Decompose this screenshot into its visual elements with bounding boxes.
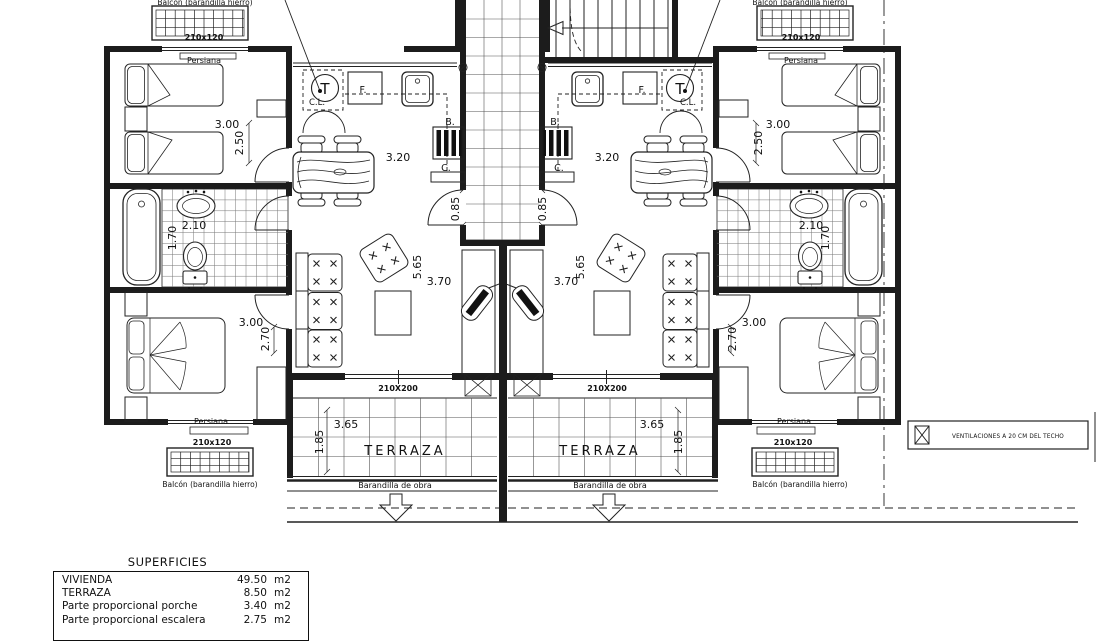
- balcony-caption-bottom-right: Balcón (barandilla hierro): [752, 480, 847, 489]
- window-label-top-right: 210x120: [782, 33, 821, 42]
- terraza-label-right: TERRAZA: [558, 444, 640, 459]
- termo-label-left: T: [319, 80, 330, 98]
- balcony-caption-top-left: Balcón (barandilla hierro): [157, 0, 252, 7]
- superficies-row-terraza: TERRAZA 8.50 m2: [62, 587, 300, 600]
- termo-label-right: T: [674, 80, 685, 98]
- dim-bedroom1-depth-right: 2.50: [752, 131, 765, 156]
- counter-label-left: C.: [441, 163, 451, 174]
- barandilla-label-left: Barandilla de obra: [358, 481, 432, 490]
- fridge-label-left: F.: [360, 85, 367, 96]
- boiler-label-left: B.: [445, 117, 455, 128]
- dim-bedroom1-depth-left: 2.50: [233, 131, 246, 156]
- dim-terraza-width-left: 3.65: [334, 418, 359, 431]
- persiana-bottom-right: Persiana: [777, 417, 811, 426]
- dim-living-length-left: 5.65: [411, 255, 424, 280]
- row-label: TERRAZA: [62, 587, 219, 600]
- apartment-right: [502, 0, 901, 521]
- dim-terraza-depth-right: 1.85: [672, 430, 685, 455]
- superficies-row-vivienda: VIVIENDA 49.50 m2: [62, 574, 300, 587]
- dim-bedroom1-width-right: 3.00: [766, 118, 791, 131]
- row-value: 2.75: [219, 614, 267, 627]
- dim-kitchen-right: 3.20: [595, 151, 620, 164]
- entry-hall: [466, 0, 539, 522]
- dim-kitchen-left: 3.20: [386, 151, 411, 164]
- dim-entry-left: 0.85: [449, 197, 462, 222]
- boiler-label-right: B.: [550, 117, 560, 128]
- row-label: VIVIENDA: [62, 574, 219, 587]
- porch-corner-wall: [404, 46, 461, 52]
- row-label: Parte proporcional escalera: [62, 614, 219, 627]
- party-wall: [499, 246, 507, 522]
- row-unit: m2: [267, 587, 300, 600]
- dim-bath-width-left: 2.10: [182, 219, 207, 232]
- closet-label-right: C.L.: [680, 98, 696, 108]
- dim-bath-depth-right: 1.70: [819, 226, 832, 251]
- window-label-top-left: 210x120: [185, 33, 224, 42]
- plan-drawing: VENTILACIONES A 20 CM DEL TECHO Balcón (…: [0, 0, 1110, 626]
- row-unit: m2: [267, 614, 300, 627]
- dim-bath-depth-left: 1.70: [166, 226, 179, 251]
- dim-bedroom2-depth-right: 2.70: [726, 327, 739, 352]
- hall-tiles: [466, 0, 539, 240]
- superficies-row-escalera: Parte proporcional escalera 2.75 m2: [62, 614, 300, 627]
- row-label: Parte proporcional porche: [62, 600, 219, 613]
- dim-bedroom1-width-left: 3.00: [215, 118, 240, 131]
- row-value: 49.50: [219, 574, 267, 587]
- terraza-label-left: TERRAZA: [363, 444, 445, 459]
- persiana-top-right: Persiana: [784, 56, 818, 65]
- dim-terraza-depth-left: 1.85: [313, 430, 326, 455]
- fridge-label-right: F.: [639, 85, 646, 96]
- dim-living-width-left: 3.70: [427, 275, 452, 288]
- row-value: 8.50: [219, 587, 267, 600]
- row-unit: m2: [267, 600, 300, 613]
- staircase: [543, 0, 719, 63]
- apartment-left: [104, 0, 503, 521]
- superficies-title: SUPERFICIES: [60, 555, 275, 569]
- dim-bedroom2-depth-left: 2.70: [259, 327, 272, 352]
- persiana-bottom-left: Persiana: [194, 417, 228, 426]
- dim-terraza-width-right: 3.65: [640, 418, 665, 431]
- ventilation-legend: VENTILACIONES A 20 CM DEL TECHO: [908, 421, 1088, 449]
- floor-plan-page: { "plan": { "labels": { "balcon_caption"…: [0, 0, 1110, 626]
- ventilation-legend-text: VENTILACIONES A 20 CM DEL TECHO: [952, 433, 1064, 440]
- superficies-row-porche: Parte proporcional porche 3.40 m2: [62, 600, 300, 613]
- counter-label-right: C.: [554, 163, 564, 174]
- superficies-box: VIVIENDA 49.50 m2 TERRAZA 8.50 m2 Parte …: [53, 571, 309, 641]
- dim-living-width-right: 3.70: [554, 275, 579, 288]
- window-label-living-left: 210X200: [378, 384, 418, 393]
- window-label-living-right: 210X200: [587, 384, 627, 393]
- balcony-caption-top-right: Balcón (barandilla hierro): [752, 0, 847, 7]
- window-label-bottom-left: 210x120: [193, 438, 232, 447]
- balcony-caption-bottom-left: Balcón (barandilla hierro): [162, 480, 257, 489]
- window-label-bottom-right: 210x120: [774, 438, 813, 447]
- dim-entry-right: 0.85: [536, 197, 549, 222]
- row-value: 3.40: [219, 600, 267, 613]
- barandilla-label-right: Barandilla de obra: [573, 481, 647, 490]
- row-unit: m2: [267, 574, 300, 587]
- closet-label-left: C.L.: [309, 98, 325, 108]
- dim-bedroom2-width-right: 3.00: [742, 316, 767, 329]
- persiana-top-left: Persiana: [187, 56, 221, 65]
